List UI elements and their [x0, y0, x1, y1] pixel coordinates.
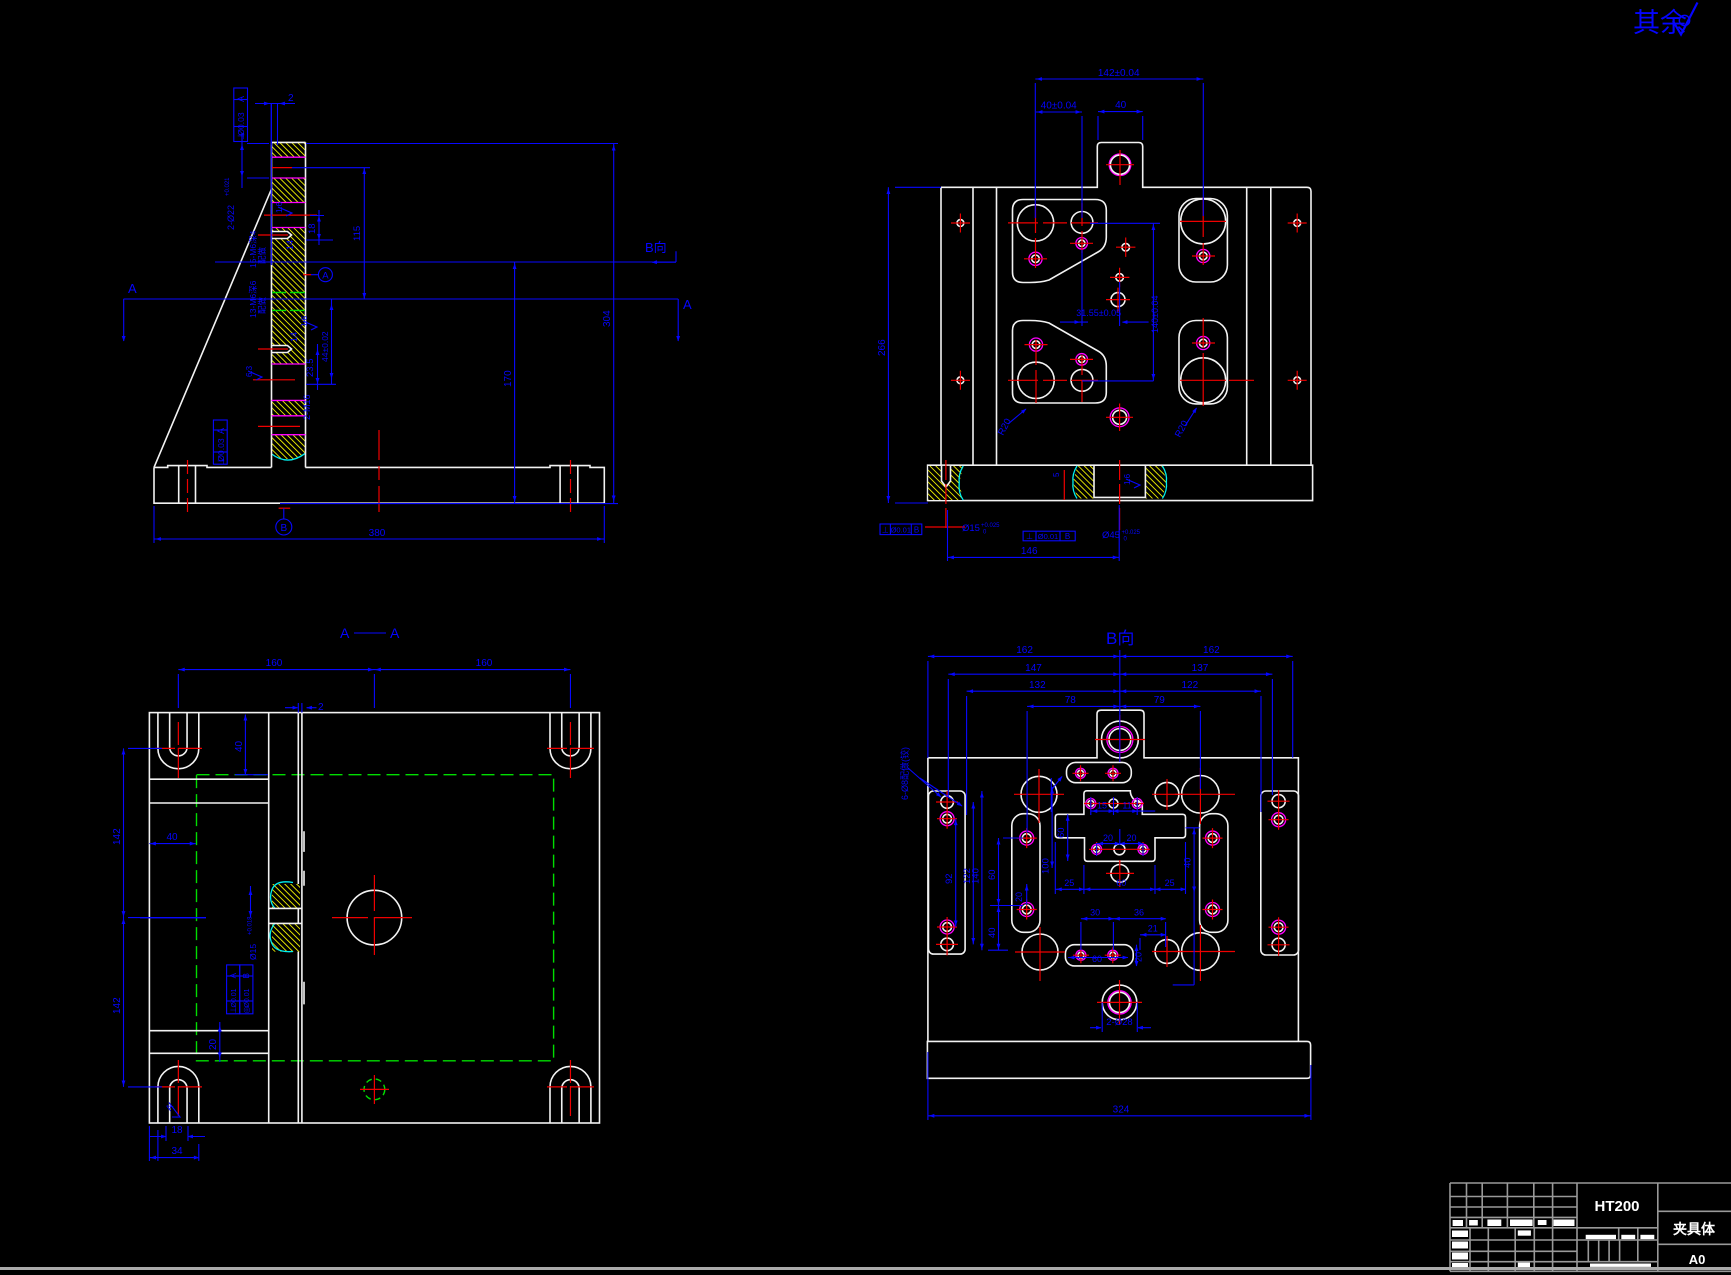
- svg-text:162: 162: [1203, 645, 1220, 656]
- svg-text:36: 36: [1134, 908, 1144, 918]
- svg-text:Ø0.01: Ø0.01: [244, 988, 251, 1007]
- svg-text:160: 160: [266, 658, 283, 669]
- svg-text:324: 324: [1113, 1105, 1130, 1116]
- svg-text:+0.018: +0.018: [248, 916, 254, 935]
- svg-text:31.55±0.05: 31.55±0.05: [1076, 308, 1121, 318]
- svg-text:5: 5: [1052, 472, 1061, 477]
- svg-text:147: 147: [1025, 663, 1042, 674]
- svg-text:15: 15: [1097, 801, 1107, 811]
- svg-text:⊥: ⊥: [229, 1006, 238, 1013]
- svg-text:A: A: [683, 297, 692, 312]
- svg-text:B: B: [1065, 532, 1070, 541]
- svg-text:40: 40: [234, 740, 245, 752]
- svg-text:A: A: [390, 625, 400, 641]
- svg-text:21: 21: [1148, 924, 1158, 934]
- svg-text:30: 30: [1090, 908, 1100, 918]
- svg-text:115: 115: [352, 226, 363, 241]
- svg-text:⊥: ⊥: [236, 132, 246, 140]
- svg-text:Ø0.03: Ø0.03: [236, 112, 246, 135]
- svg-text:44±0.02: 44±0.02: [320, 331, 330, 362]
- svg-text:A0: A0: [1689, 1252, 1706, 1267]
- svg-text:A: A: [216, 428, 226, 434]
- svg-text:92: 92: [944, 873, 955, 884]
- svg-text:◎: ◎: [242, 1006, 251, 1013]
- svg-text:140±0.04: 140±0.04: [1150, 296, 1160, 333]
- svg-text:25: 25: [1064, 878, 1074, 888]
- svg-text:160: 160: [476, 658, 493, 669]
- svg-text:146: 146: [1021, 546, 1038, 557]
- svg-text:162: 162: [1016, 645, 1033, 656]
- svg-text:配做: 配做: [257, 296, 267, 314]
- svg-text:34: 34: [171, 1146, 183, 1157]
- svg-text:20: 20: [1134, 952, 1144, 962]
- svg-text:夹具体: 夹具体: [1673, 1221, 1716, 1237]
- svg-text:1.6: 1.6: [275, 201, 284, 213]
- svg-text:A: A: [340, 625, 350, 641]
- svg-text:142: 142: [112, 997, 123, 1014]
- svg-text:2: 2: [318, 702, 324, 713]
- svg-text:40±0.04: 40±0.04: [1041, 101, 1078, 112]
- svg-text:25: 25: [1165, 878, 1175, 888]
- svg-text:40: 40: [987, 927, 998, 938]
- svg-text:配做: 配做: [257, 246, 267, 264]
- svg-text:40: 40: [1115, 100, 1127, 111]
- svg-text:11: 11: [1122, 801, 1131, 811]
- svg-text:Ø15: Ø15: [248, 944, 258, 960]
- svg-text:380: 380: [369, 528, 386, 539]
- svg-text:132: 132: [1029, 680, 1046, 691]
- svg-text:+0.025: +0.025: [1122, 530, 1141, 536]
- svg-text:14: 14: [289, 332, 299, 342]
- svg-text:20: 20: [1014, 892, 1024, 902]
- svg-text:B: B: [242, 973, 251, 978]
- svg-text:A: A: [236, 96, 246, 102]
- svg-text:Ø0.01: Ø0.01: [1038, 532, 1058, 541]
- svg-text:1.6: 1.6: [1123, 473, 1132, 485]
- svg-text:60: 60: [1056, 827, 1067, 838]
- svg-text:20: 20: [1103, 833, 1113, 843]
- svg-text:23.5: 23.5: [305, 359, 316, 378]
- svg-text:B: B: [280, 523, 287, 534]
- svg-text:B向: B向: [645, 240, 667, 255]
- svg-text:60: 60: [1116, 878, 1126, 888]
- svg-text:B向: B向: [1106, 629, 1134, 648]
- svg-text:18: 18: [171, 1125, 183, 1136]
- svg-text:Ø15: Ø15: [962, 523, 980, 534]
- svg-text:6-Ø8配做(铰): 6-Ø8配做(铰): [899, 747, 910, 800]
- svg-text:18: 18: [307, 223, 318, 234]
- svg-text:14: 14: [285, 240, 295, 250]
- svg-text:20: 20: [1126, 833, 1136, 843]
- svg-text:79: 79: [1154, 695, 1166, 706]
- svg-text:2-Ø22: 2-Ø22: [226, 205, 236, 230]
- svg-text:+0.025: +0.025: [981, 523, 1000, 529]
- svg-text:100: 100: [1041, 858, 1052, 874]
- svg-text:2-M16: 2-M16: [302, 394, 312, 420]
- svg-text:60: 60: [1092, 954, 1102, 964]
- svg-text:+0.021: +0.021: [225, 177, 231, 196]
- svg-text:1.6: 1.6: [300, 315, 309, 327]
- svg-text:A: A: [322, 271, 329, 282]
- svg-text:170: 170: [503, 370, 514, 387]
- svg-text:266: 266: [877, 339, 888, 356]
- svg-text:140: 140: [971, 868, 982, 884]
- svg-text:⊥: ⊥: [216, 457, 226, 465]
- svg-text:其余: 其余: [1633, 8, 1687, 38]
- svg-text:A: A: [128, 281, 137, 296]
- svg-text:Ø0.01: Ø0.01: [891, 526, 911, 535]
- svg-text:40: 40: [166, 832, 178, 843]
- svg-text:304: 304: [602, 310, 613, 327]
- svg-text:6.3: 6.3: [245, 365, 254, 377]
- svg-text:Ø45: Ø45: [1102, 530, 1120, 541]
- svg-text:78: 78: [1065, 695, 1077, 706]
- svg-text:HT200: HT200: [1594, 1198, 1639, 1215]
- svg-text:2: 2: [288, 93, 294, 104]
- svg-text:142: 142: [112, 828, 123, 845]
- svg-text:142±0.04: 142±0.04: [1098, 68, 1140, 79]
- svg-text:60: 60: [987, 869, 998, 880]
- svg-text:137: 137: [1192, 663, 1209, 674]
- svg-text:A: A: [229, 972, 238, 978]
- svg-text:20: 20: [208, 1038, 219, 1050]
- svg-text:40: 40: [1183, 857, 1194, 868]
- svg-text:B: B: [914, 526, 919, 535]
- svg-text:Ø0.01: Ø0.01: [231, 988, 238, 1007]
- svg-text:⊥: ⊥: [882, 526, 889, 535]
- svg-text:⊥: ⊥: [1026, 532, 1033, 541]
- svg-text:122: 122: [1181, 680, 1198, 691]
- svg-text:2-Ø28: 2-Ø28: [1106, 1017, 1132, 1028]
